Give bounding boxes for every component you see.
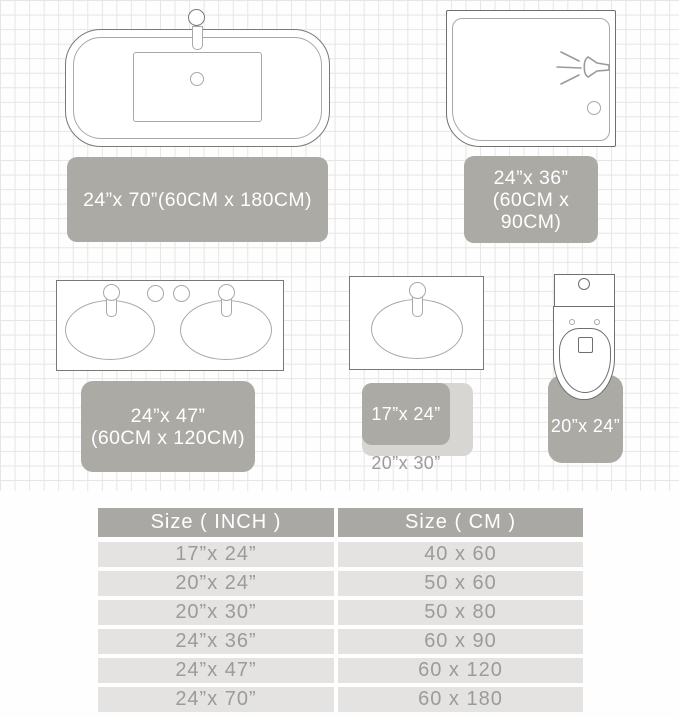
vanity-rug-label-line1: 24”x 47” bbox=[131, 405, 206, 427]
vanity-rug-label-line2: (60CM x 120CM) bbox=[91, 427, 245, 449]
table-row: 17”x 24” 40 x 60 bbox=[98, 542, 583, 567]
cell-cm: 60 x 180 bbox=[338, 687, 583, 712]
sink-rug-small: 17”x 24” bbox=[362, 383, 450, 445]
toilet-seat-detail bbox=[578, 337, 593, 353]
cell-inch: 20”x 24” bbox=[98, 571, 334, 596]
table-row: 20”x 30” 50 x 80 bbox=[98, 600, 583, 625]
cell-cm: 50 x 80 bbox=[338, 600, 583, 625]
size-table-header-inch: Size ( INCH ) bbox=[98, 508, 334, 537]
shower-head-icon bbox=[551, 45, 613, 90]
bathtub-faucet-knob-icon bbox=[188, 9, 205, 26]
cell-inch: 17”x 24” bbox=[98, 542, 334, 567]
cell-cm: 50 x 60 bbox=[338, 571, 583, 596]
cell-cm: 60 x 90 bbox=[338, 629, 583, 654]
cell-inch: 20”x 30” bbox=[98, 600, 334, 625]
toilet-hinge-right-icon bbox=[594, 319, 600, 325]
vanity-left-faucet-knob-icon bbox=[103, 284, 120, 301]
vanity-right-faucet-knob-icon bbox=[218, 284, 235, 301]
table-row: 20”x 24” 50 x 60 bbox=[98, 571, 583, 596]
vanity-soap-hole-left-icon bbox=[147, 285, 164, 302]
bathtub-basin bbox=[133, 52, 262, 122]
sink-counter-outline bbox=[349, 276, 484, 370]
shower-outline bbox=[446, 10, 616, 147]
bathtub-drain-icon bbox=[190, 72, 204, 86]
sink-rug-large-label: 20”x 30” bbox=[360, 453, 452, 474]
toilet-flush-button-icon bbox=[578, 278, 590, 290]
table-row: 24”x 47” 60 x 120 bbox=[98, 658, 583, 683]
shower-rug: 24”x 36” (60CM x 90CM) bbox=[464, 156, 598, 243]
table-row: 24”x 36” 60 x 90 bbox=[98, 629, 583, 654]
bathtub-rug-label: 24”x 70”(60CM x 180CM) bbox=[83, 189, 312, 211]
cell-inch: 24”x 70” bbox=[98, 687, 334, 712]
sink-rug-small-label: 17”x 24” bbox=[371, 404, 440, 425]
toilet-hinge-left-icon bbox=[569, 319, 575, 325]
bathtub-faucet-stem-icon bbox=[192, 26, 203, 50]
cell-cm: 40 x 60 bbox=[338, 542, 583, 567]
cell-inch: 24”x 36” bbox=[98, 629, 334, 654]
shower-drain-icon bbox=[587, 101, 601, 115]
sink-faucet-knob-icon bbox=[409, 282, 426, 299]
bathtub-rug: 24”x 70”(60CM x 180CM) bbox=[67, 157, 328, 242]
shower-rug-label-line2: (60CM x 90CM) bbox=[464, 189, 598, 233]
size-table-header-row: Size ( INCH ) Size ( CM ) bbox=[98, 508, 583, 537]
vanity-counter-outline bbox=[56, 280, 284, 371]
cell-cm: 60 x 120 bbox=[338, 658, 583, 683]
size-table-header-cm: Size ( CM ) bbox=[338, 508, 583, 537]
size-table-body: 17”x 24” 40 x 60 20”x 24” 50 x 60 20”x 3… bbox=[98, 542, 583, 712]
vanity-rug: 24”x 47” (60CM x 120CM) bbox=[81, 381, 255, 472]
shower-rug-label-line1: 24”x 36” bbox=[494, 167, 569, 189]
toilet-rug-label: 20”x 24” bbox=[551, 416, 620, 437]
cell-inch: 24”x 47” bbox=[98, 658, 334, 683]
size-table: Size ( INCH ) Size ( CM ) 17”x 24” 40 x … bbox=[98, 508, 583, 716]
vanity-soap-hole-right-icon bbox=[173, 285, 190, 302]
table-row: 24”x 70” 60 x 180 bbox=[98, 687, 583, 712]
bathroom-rug-size-guide: 24”x 70”(60CM x 180CM) 24”x 36” (60CM x … bbox=[0, 0, 679, 717]
